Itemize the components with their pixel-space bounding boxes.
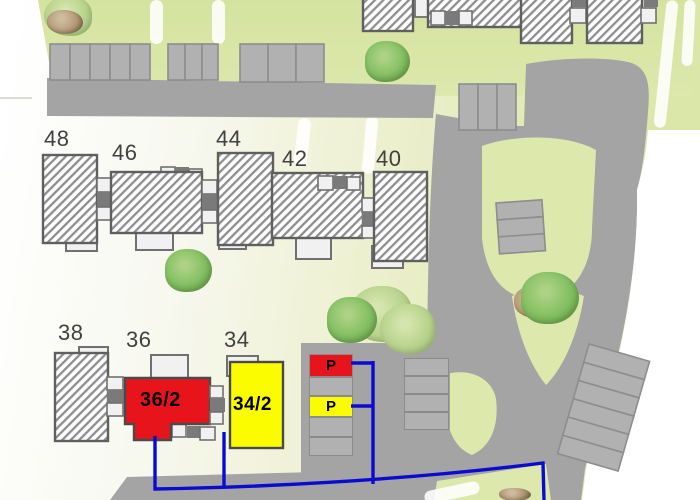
- rock: [47, 10, 83, 34]
- parking-stall: [404, 358, 449, 376]
- parking-stall: [309, 377, 353, 396]
- tree: [365, 41, 410, 82]
- house-number-44: 44: [216, 126, 241, 152]
- yellow-p-label: P: [310, 397, 352, 416]
- parking-stack-island: [496, 200, 545, 254]
- red-p-label: P: [310, 355, 352, 376]
- parking-stall: [404, 376, 449, 394]
- parking-row-top-mid: [168, 44, 218, 80]
- parking-stall: [404, 412, 449, 430]
- house-number-46: 46: [112, 140, 137, 166]
- parking-row-top-right: [240, 44, 324, 82]
- parking-stall: [309, 437, 353, 456]
- parking-stall-yellow-p[interactable]: P: [309, 396, 353, 417]
- tree: [380, 304, 435, 354]
- tree: [165, 249, 212, 292]
- parking-stall-red-p[interactable]: P: [309, 354, 353, 377]
- house-number-38: 38: [58, 320, 83, 346]
- building-40: [374, 172, 427, 261]
- house-number-34: 34: [224, 327, 249, 353]
- house-number-42: 42: [282, 146, 307, 172]
- unit-36-2-label: 36/2: [140, 389, 181, 412]
- road-top: [47, 78, 436, 118]
- house-number-36: 36: [126, 327, 151, 353]
- tree: [327, 297, 377, 343]
- unit-34-2-label: 34/2: [233, 394, 272, 416]
- building-48: [43, 155, 97, 243]
- parking-stack-upper-right: [459, 84, 516, 130]
- building-38: [55, 353, 108, 441]
- tree: [521, 272, 579, 324]
- building-row-middle: [43, 153, 427, 268]
- building-44: [218, 153, 273, 245]
- house-number-48: 48: [44, 126, 69, 152]
- building-row-top: [363, 0, 658, 43]
- parking-row-top-left: [50, 44, 150, 80]
- site-plan-map: P P 48 46 44 42 40 38 36 34 36/2 34/2: [0, 0, 700, 500]
- parking-stall: [404, 394, 449, 412]
- house-number-40: 40: [376, 146, 401, 172]
- rock: [499, 488, 531, 500]
- building-46: [111, 172, 202, 233]
- parking-stall: [309, 417, 353, 437]
